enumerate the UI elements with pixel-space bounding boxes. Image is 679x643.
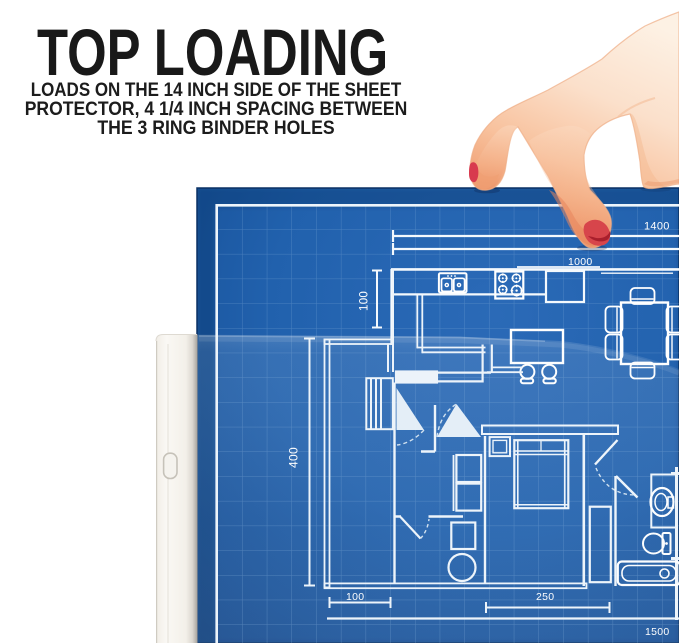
svg-text:1000: 1000: [568, 256, 593, 268]
svg-text:1400: 1400: [644, 221, 670, 233]
svg-text:100: 100: [359, 291, 371, 311]
